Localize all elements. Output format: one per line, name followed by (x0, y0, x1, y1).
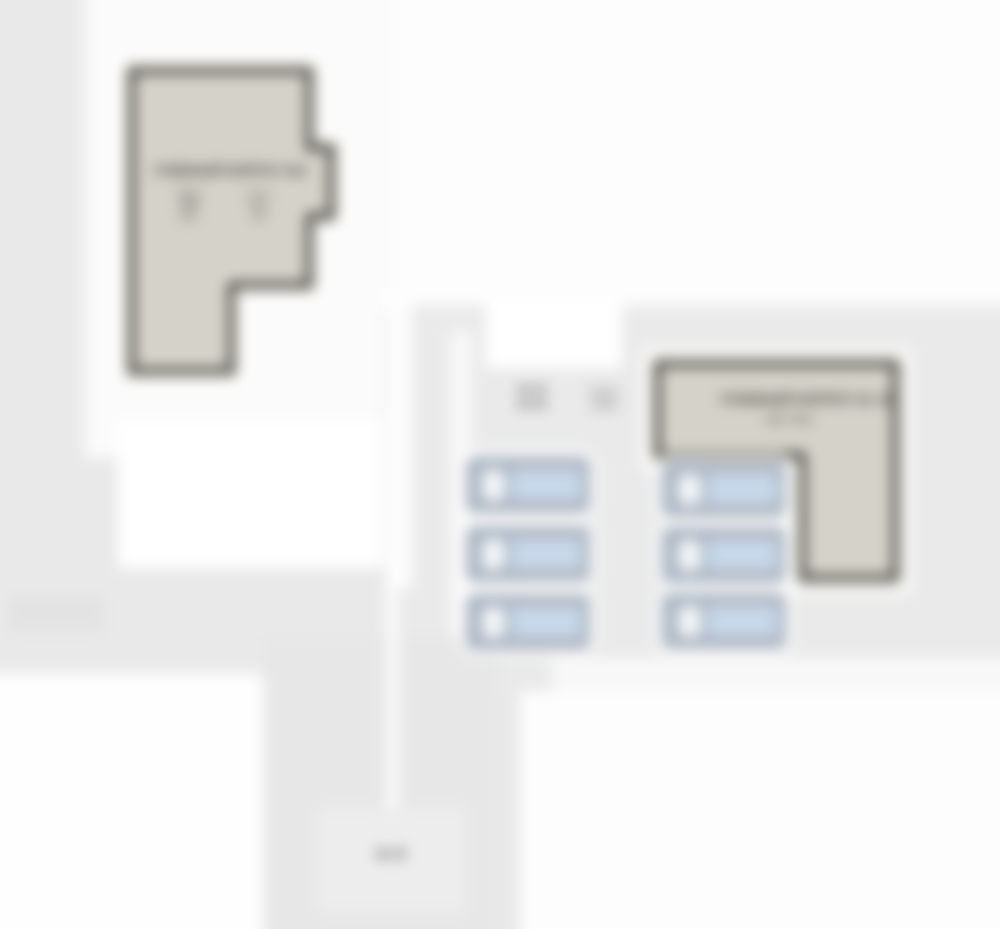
note-line: 24×12 (228, 189, 290, 200)
left-building-note-left: № 21 1956 3 эт. (163, 187, 215, 223)
bed-pillow (482, 470, 505, 501)
bed-marker (663, 462, 785, 516)
info-line: № 12 (501, 383, 563, 398)
left-building-note-right: 24×12 кирп. ж/б (228, 189, 290, 222)
bed-marker (663, 594, 785, 648)
info-line: 6 мест (575, 399, 635, 412)
bed-blanket (512, 466, 581, 504)
left-building-title: УЧЕБНЫЙ КОРПУС №2 (150, 163, 310, 178)
note-line: кирп. (228, 200, 290, 211)
map-scene: УЧЕБНЫЙ КОРПУС №2 № 21 1956 3 эт. 24×12 … (0, 0, 1000, 929)
note-line: ж/б (228, 211, 290, 222)
parking-info-left: № 12 № 10 (501, 383, 563, 413)
bed-pillow (482, 607, 505, 638)
info-line: № 10 (501, 398, 563, 413)
bed-blanket (708, 602, 777, 640)
parking-info-right: 8 мест 6 мест (575, 386, 635, 412)
bed-pillow (678, 606, 701, 637)
bed-blanket (708, 470, 777, 508)
note-line: № 21 (163, 187, 215, 199)
bed-marker (663, 528, 785, 582)
bed-blanket (512, 603, 581, 641)
bed-blanket (512, 535, 581, 573)
bed-marker (467, 458, 589, 512)
bed-pillow (482, 539, 505, 570)
bed-marker (467, 527, 589, 581)
right-building-subtitle: два этажа (702, 414, 877, 425)
note-line: 1956 (163, 199, 215, 211)
bed-marker (467, 595, 589, 649)
bed-pillow (678, 540, 701, 571)
map-canvas[interactable]: УЧЕБНЫЙ КОРПУС №2 № 21 1956 3 эт. 24×12 … (0, 0, 1000, 929)
note-line: 3 эт. (163, 211, 215, 223)
bed-pillow (678, 474, 701, 505)
sector-label: А-II (316, 846, 466, 864)
right-building-title: ГЛАВНЫЙ КОРПУС № 12 (702, 392, 910, 407)
info-line: 8 мест (575, 386, 635, 399)
bed-blanket (708, 536, 777, 574)
